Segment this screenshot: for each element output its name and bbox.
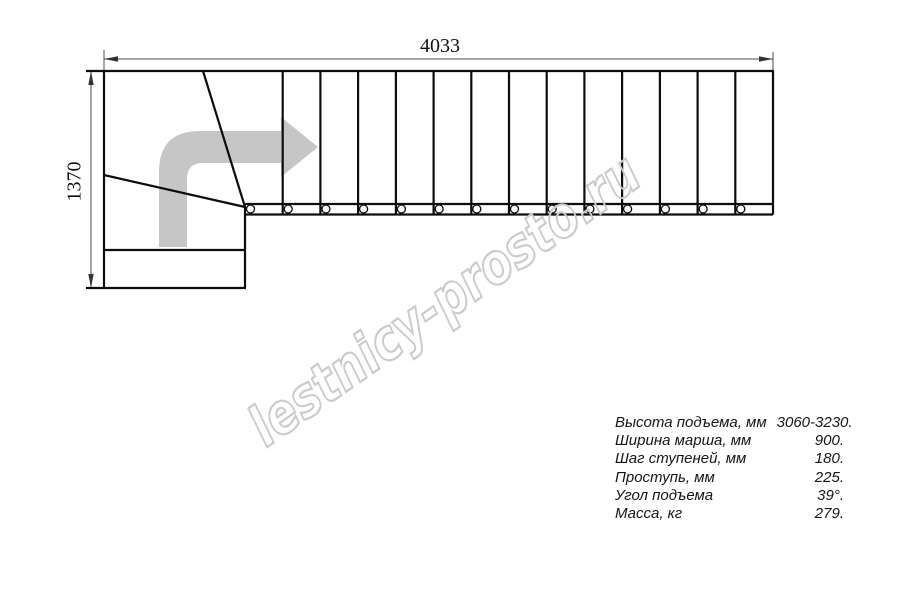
direction-arrow-icon — [159, 117, 318, 247]
baluster-circle — [473, 205, 481, 213]
spec-row: Ширина марша, мм900. — [615, 432, 844, 450]
baluster-circle — [360, 205, 368, 213]
spec-label: Шаг ступеней, мм — [615, 450, 746, 468]
specs-table: Высота подъема, мм3060-3230.Ширина марша… — [615, 414, 844, 523]
spec-row: Угол подъема39°. — [615, 487, 844, 505]
baluster-circle — [435, 205, 443, 213]
spec-label: Проступь, мм — [615, 469, 715, 487]
dim-arrow-right — [759, 56, 773, 61]
dimension-arrowheads — [88, 56, 773, 288]
spec-label: Масса, кг — [615, 505, 682, 523]
stair-outline — [86, 70, 773, 289]
spec-value: 225. — [805, 469, 844, 487]
spec-value: 3060-3230. — [767, 414, 853, 432]
dim-arrow-up — [88, 71, 93, 85]
baluster-circle — [284, 205, 292, 213]
baluster-circle — [661, 205, 669, 213]
spec-label: Высота подъема, мм — [615, 414, 767, 432]
straight-step-lines — [283, 71, 736, 215]
baluster-circle — [397, 205, 405, 213]
spec-label: Ширина марша, мм — [615, 432, 751, 450]
width-dimension-label: 4033 — [407, 35, 473, 58]
height-dimension-label: 1370 — [64, 151, 87, 213]
spec-row: Проступь, мм225. — [615, 469, 844, 487]
spec-row: Масса, кг279. — [615, 505, 844, 523]
baluster-circle — [699, 205, 707, 213]
dim-arrow-left — [104, 56, 118, 61]
baluster-circle — [322, 205, 330, 213]
spec-value: 39°. — [807, 487, 844, 505]
baluster-circle — [247, 205, 255, 213]
spec-label: Угол подъема — [615, 487, 713, 505]
spec-value: 279. — [805, 505, 844, 523]
spec-row: Шаг ступеней, мм180. — [615, 450, 844, 468]
spec-value: 900. — [805, 432, 844, 450]
spec-value: 180. — [805, 450, 844, 468]
dim-arrow-down — [88, 274, 93, 288]
spec-row: Высота подъема, мм3060-3230. — [615, 414, 844, 432]
stair-plan-page: lestnicy-prosto.ru 4033 1370 Высота подъ… — [0, 0, 900, 600]
watermark-text: lestnicy-prosto.ru — [237, 141, 653, 459]
dimension-lines — [91, 50, 773, 288]
baluster-circle — [737, 205, 745, 213]
